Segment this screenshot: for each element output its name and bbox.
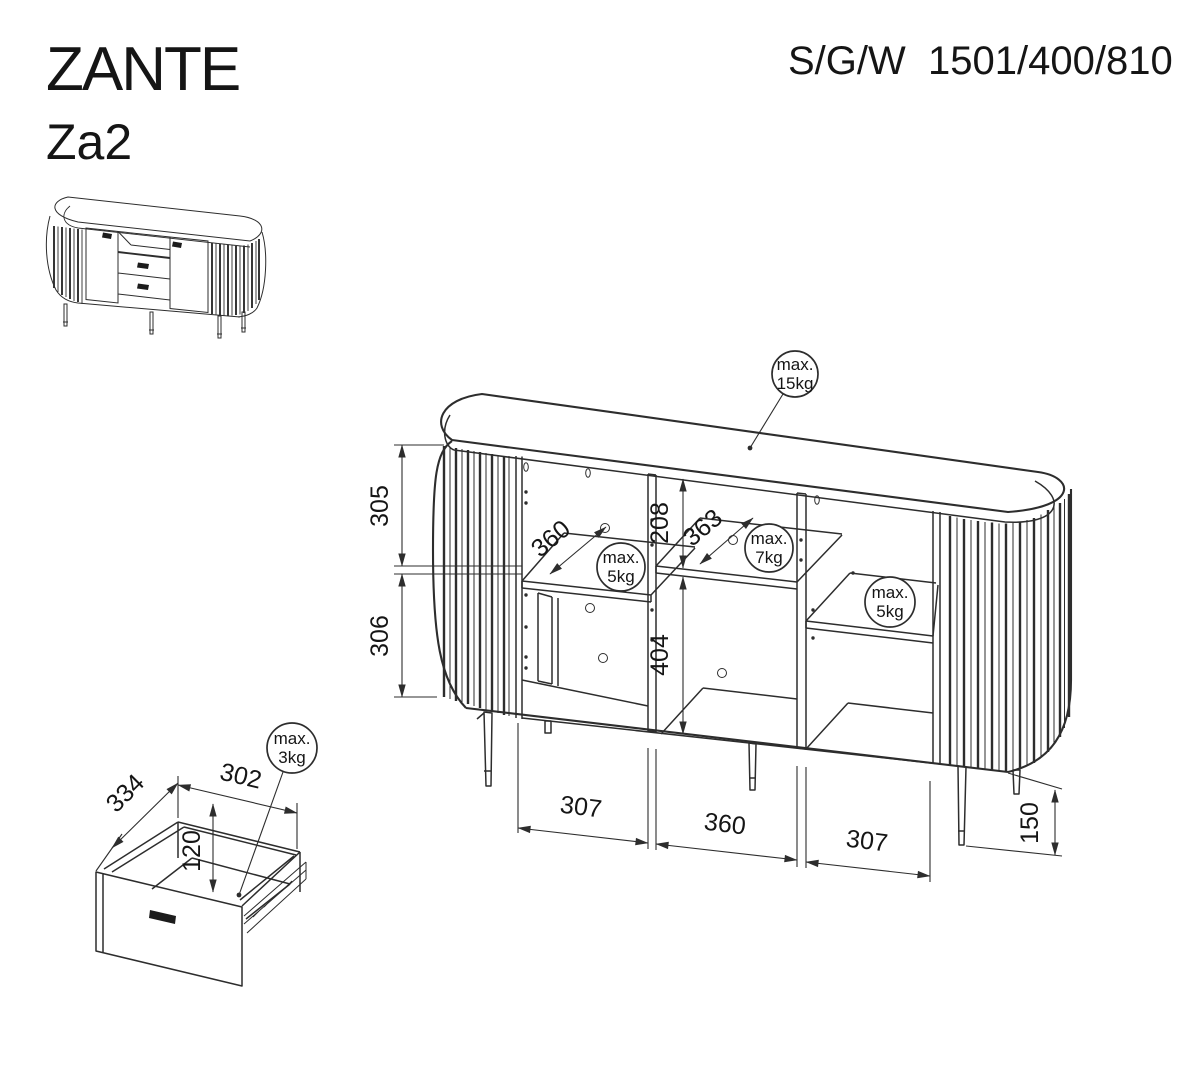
- dim-bottom-gap-label: 404: [646, 634, 674, 676]
- main-view: 305 306 208 404 360 363 307 360 307: [366, 351, 1071, 882]
- load-mid-label-1: max.: [751, 529, 788, 548]
- spec-label: S/G/W: [788, 39, 906, 83]
- technical-drawing: ZANTE Za2 S/G/W 1501/400/810: [0, 0, 1200, 1073]
- hinge-hole: [586, 469, 591, 477]
- dim-middle-heights: 208 404: [646, 479, 683, 734]
- load-top-label-1: max.: [777, 355, 814, 374]
- dim-lower-height-label: 306: [366, 615, 394, 657]
- thumbnail-view: [46, 197, 265, 338]
- dim-left-width-label: 307: [559, 791, 604, 824]
- load-badge-mid-shelf: max. 7kg: [745, 524, 793, 572]
- load-left-label-1: max.: [603, 548, 640, 567]
- drawer-front-panel: [96, 872, 242, 986]
- thumb-drawer2-handle: [137, 284, 149, 291]
- model-code: Za2: [46, 114, 132, 170]
- thumb-drawer1-handle: [137, 263, 149, 270]
- thumb-body-outline: [46, 216, 265, 317]
- header: ZANTE Za2 S/G/W 1501/400/810: [46, 35, 1173, 170]
- dim-upper-height-label: 305: [366, 485, 394, 527]
- load-left-label-2: 5kg: [607, 567, 634, 586]
- page-title: ZANTE: [46, 35, 239, 104]
- dim-drawer-depth-label: 334: [101, 769, 150, 818]
- thumb-right-flutes-thick: [212, 239, 259, 316]
- cam-hole: [586, 604, 595, 613]
- load-right-label-2: 5kg: [876, 602, 903, 621]
- drawer-detail-view: 334 302 120 max. 3kg: [96, 723, 317, 986]
- load-top-label-2: 15kg: [777, 374, 814, 393]
- body-outline: [433, 441, 1071, 772]
- dim-widths: 307 360 307: [518, 723, 930, 882]
- drawer-handle: [149, 910, 176, 924]
- furniture-spec-sheet: ZANTE Za2 S/G/W 1501/400/810: [0, 0, 1200, 1073]
- interior-divider: [538, 593, 558, 686]
- thumb-top-rim: [64, 206, 250, 247]
- load-drawer-label-2: 3kg: [278, 748, 305, 767]
- thumb-left-door: [86, 228, 118, 303]
- dim-drawer-height-label: 120: [178, 830, 206, 872]
- thumb-right-door: [170, 237, 208, 313]
- load-right-label-1: max.: [872, 583, 909, 602]
- thumb-niche-shelf: [118, 252, 170, 258]
- dim-drawer-width-label: 302: [217, 758, 264, 795]
- top-surface: [441, 394, 1064, 512]
- legs: [477, 712, 1020, 845]
- dim-leg-height-label: 150: [1016, 802, 1044, 844]
- dim-right-width-label: 307: [845, 825, 890, 858]
- dim-top-gap-label: 208: [646, 502, 674, 544]
- load-mid-label-2: 7kg: [755, 548, 782, 567]
- drawer-slide-rail: [244, 862, 306, 933]
- cam-hole: [718, 669, 727, 678]
- dim-left-shelf-depth-label: 360: [526, 515, 576, 563]
- right-flutes-thick: [950, 494, 1069, 772]
- load-badge-left-shelf: max. 5kg: [597, 543, 645, 591]
- dim-drawer-inner-height: 120: [178, 804, 213, 892]
- spec-value: 1501/400/810: [928, 39, 1173, 83]
- cam-hole: [599, 654, 608, 663]
- dim-mid-width-label: 360: [703, 808, 748, 841]
- thumb-left-door-handle: [102, 233, 112, 240]
- dim-mid-shelf-depth-label: 363: [678, 504, 728, 552]
- hinge-hole: [524, 463, 529, 471]
- load-drawer-label-1: max.: [274, 729, 311, 748]
- thumb-legs: [63, 304, 246, 338]
- thumb-right-door-handle: [172, 242, 182, 249]
- load-badge-right-shelf: max. 5kg: [865, 577, 915, 627]
- cam-hole: [729, 536, 738, 545]
